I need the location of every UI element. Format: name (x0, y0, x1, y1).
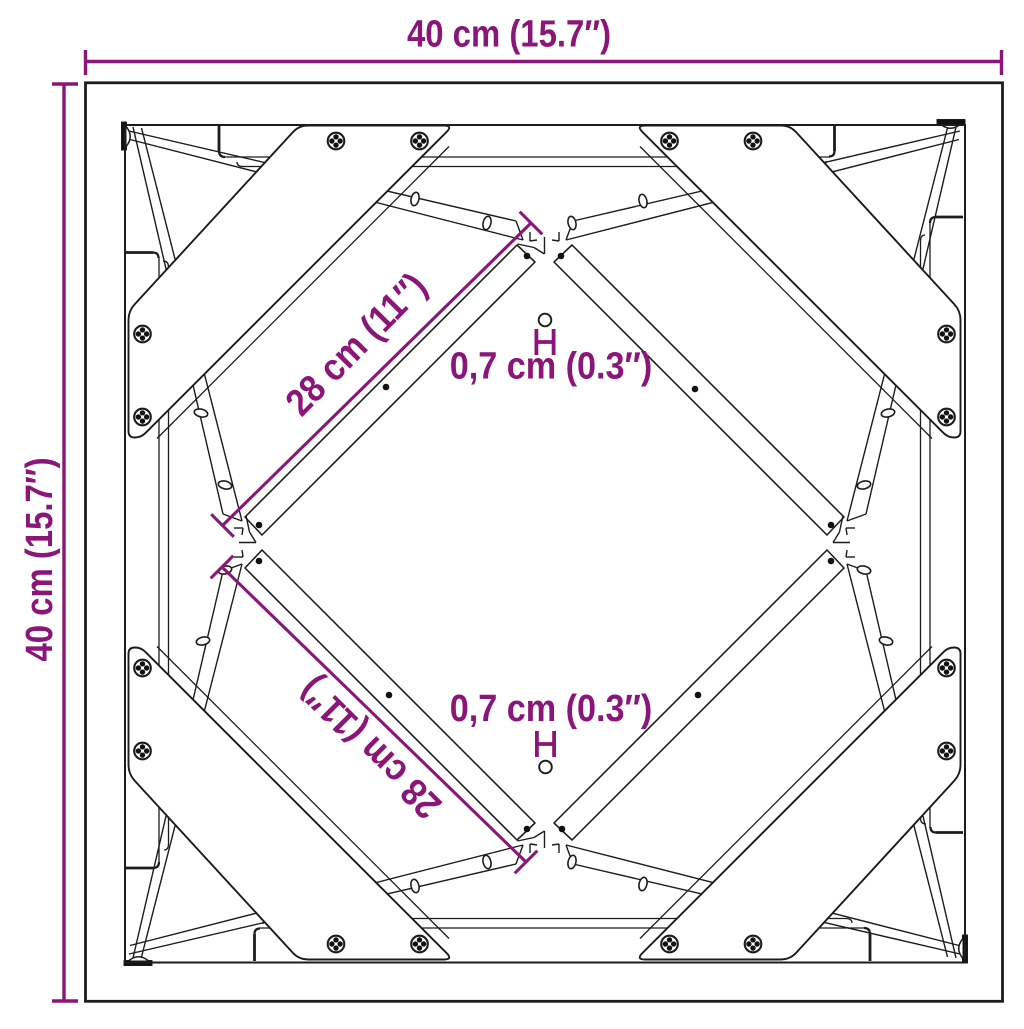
svg-text:40 cm (15.7″): 40 cm (15.7″) (407, 12, 611, 55)
svg-text:0,7 cm (0.3″): 0,7 cm (0.3″) (450, 344, 653, 387)
svg-text:40 cm (15.7″): 40 cm (15.7″) (18, 457, 61, 661)
svg-text:0,7 cm (0.3″): 0,7 cm (0.3″) (450, 686, 653, 729)
